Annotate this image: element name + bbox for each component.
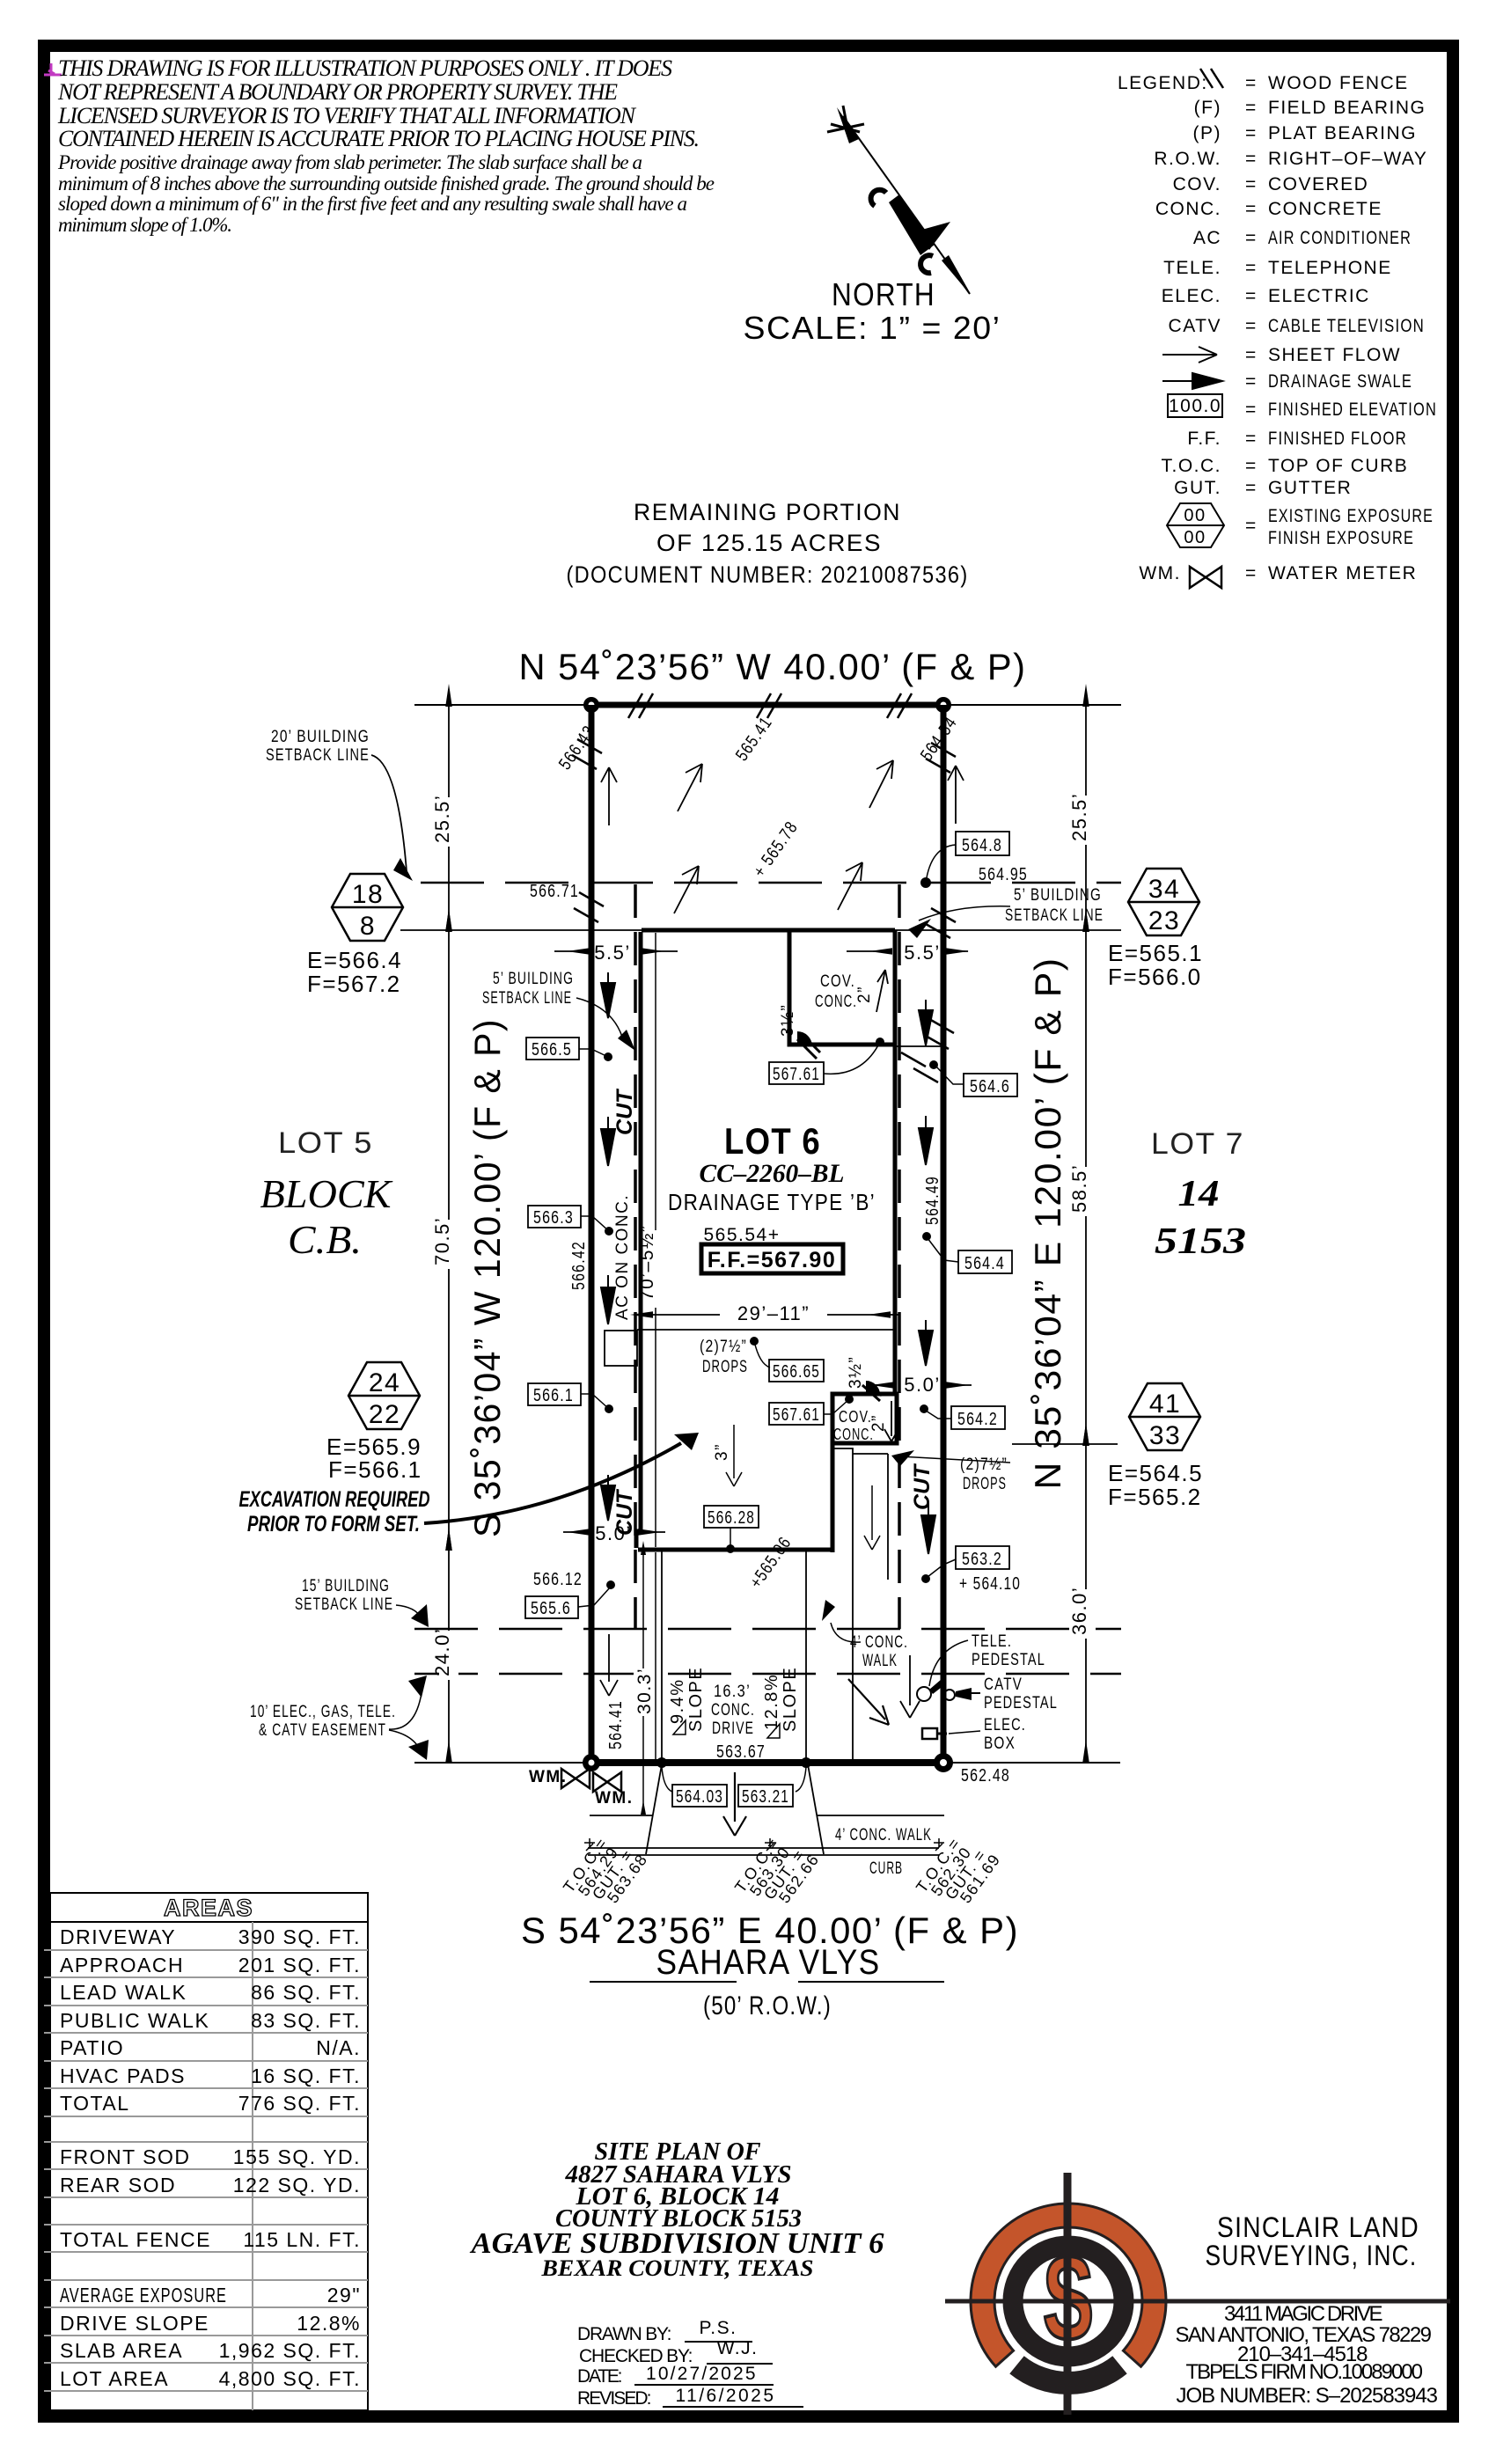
svg-text:=: = xyxy=(1245,516,1258,536)
svg-text:70.5’: 70.5’ xyxy=(431,1217,453,1265)
svg-text:83 SQ. FT.: 83 SQ. FT. xyxy=(251,2009,361,2032)
svg-text:THIS DRAWING IS FOR ILLUSTRATI: THIS DRAWING IS FOR ILLUSTRATION PURPOSE… xyxy=(58,55,672,81)
svg-text:GUT.: GUT. xyxy=(1174,478,1221,498)
svg-text:BOX: BOX xyxy=(984,1734,1016,1753)
svg-text:(F): (F) xyxy=(1194,98,1221,118)
svg-text:F=566.1: F=566.1 xyxy=(328,1456,422,1483)
svg-text:566.12: 566.12 xyxy=(533,1570,583,1589)
svg-text:TOTAL: TOTAL xyxy=(60,2092,130,2115)
svg-text:DATE:: DATE: xyxy=(577,2366,624,2387)
svg-text:SETBACK LINE: SETBACK LINE xyxy=(1005,906,1104,925)
svg-text:4’ CONC. WALK: 4’ CONC. WALK xyxy=(835,1826,932,1844)
svg-text:REMAINING PORTION: REMAINING PORTION xyxy=(634,499,901,525)
svg-text:SLOPE: SLOPE xyxy=(781,1667,800,1732)
svg-text:566.71: 566.71 xyxy=(530,882,579,901)
svg-text:=: = xyxy=(1245,258,1258,278)
svg-text:15’ BUILDING: 15’ BUILDING xyxy=(302,1577,390,1595)
svg-text:CUT: CUT xyxy=(910,1463,935,1510)
svg-text:564.41: 564.41 xyxy=(606,1700,626,1749)
svg-text:DRAINAGE TYPE ’B’: DRAINAGE TYPE ’B’ xyxy=(668,1189,876,1215)
svg-text:564.95: 564.95 xyxy=(979,865,1028,884)
svg-text:SETBACK LINE: SETBACK LINE xyxy=(295,1595,393,1614)
svg-text:=: = xyxy=(1245,123,1258,143)
svg-text:P.S.: P.S. xyxy=(700,2318,737,2338)
svg-text:58.5’: 58.5’ xyxy=(1068,1164,1090,1213)
svg-text:5’ BUILDING: 5’ BUILDING xyxy=(1014,886,1102,905)
svg-text:COVERED: COVERED xyxy=(1268,174,1368,194)
svg-text:COV.: COV. xyxy=(839,1408,872,1426)
svg-text:12.8%: 12.8% xyxy=(762,1674,781,1730)
svg-text:3”: 3” xyxy=(713,1443,731,1461)
svg-text:LEGEND:: LEGEND: xyxy=(1118,73,1208,93)
svg-text:TOP OF CURB: TOP OF CURB xyxy=(1268,456,1408,476)
svg-text:=: = xyxy=(1245,563,1258,583)
svg-text:CONC.: CONC. xyxy=(711,1701,755,1720)
svg-text:NOT REPRESENT A BOUNDARY OR PR: NOT REPRESENT A BOUNDARY OR PROPERTY SUR… xyxy=(57,79,618,105)
svg-text:RIGHT–OF–WAY: RIGHT–OF–WAY xyxy=(1268,149,1427,169)
svg-text:22: 22 xyxy=(369,1400,400,1429)
svg-text:564.2: 564.2 xyxy=(957,1410,998,1429)
svg-text:00: 00 xyxy=(1184,506,1206,525)
svg-text:TBPELS FIRM NO.10089000: TBPELS FIRM NO.10089000 xyxy=(1186,2360,1425,2384)
svg-text:25.5’: 25.5’ xyxy=(1068,793,1090,841)
svg-text:16.3’: 16.3’ xyxy=(714,1683,751,1701)
svg-text:DRAINAGE SWALE: DRAINAGE SWALE xyxy=(1268,371,1412,392)
svg-text:LOT 7: LOT 7 xyxy=(1151,1127,1244,1161)
svg-text:minimum slope of 1.0%.: minimum slope of 1.0%. xyxy=(58,214,232,236)
svg-text:25.5’: 25.5’ xyxy=(431,795,453,843)
svg-text:564.8: 564.8 xyxy=(962,836,1002,855)
svg-text:=: = xyxy=(1245,149,1258,169)
svg-text:562.48: 562.48 xyxy=(961,1766,1010,1786)
svg-text:WALK: WALK xyxy=(862,1652,898,1670)
svg-text:SETBACK LINE: SETBACK LINE xyxy=(482,989,572,1008)
svg-text:5’ BUILDING: 5’ BUILDING xyxy=(493,970,574,988)
svg-text:566.1: 566.1 xyxy=(533,1386,574,1405)
svg-text:F=566.0: F=566.0 xyxy=(1108,964,1202,990)
svg-text:115 LN. FT.: 115 LN. FT. xyxy=(243,2228,361,2251)
svg-text:2”: 2” xyxy=(855,986,874,1003)
svg-text:AIR CONDITIONER: AIR CONDITIONER xyxy=(1268,228,1412,248)
svg-text:11/6/2025: 11/6/2025 xyxy=(676,2386,775,2406)
svg-text:FINISHED ELEVATION: FINISHED ELEVATION xyxy=(1268,400,1437,420)
svg-text:PEDESTAL: PEDESTAL xyxy=(984,1694,1058,1712)
svg-text:=: = xyxy=(1245,199,1258,219)
svg-text:=: = xyxy=(1245,478,1258,498)
svg-text:12.8%: 12.8% xyxy=(297,2312,361,2335)
svg-text:DRIVEWAY: DRIVEWAY xyxy=(60,1925,176,1948)
svg-text:PATIO: PATIO xyxy=(60,2036,124,2059)
svg-text:FRONT SOD: FRONT SOD xyxy=(60,2145,191,2168)
svg-text:N 35˚36’04” E 120.00’ (F: N 35˚36’04” E 120.00’ (F & P) xyxy=(1027,957,1068,1490)
svg-text:29’–11”: 29’–11” xyxy=(737,1302,810,1324)
svg-text:W.J.: W.J. xyxy=(717,2338,759,2358)
svg-text:SURVEYING, INC.: SURVEYING, INC. xyxy=(1206,2240,1418,2271)
svg-text:WM.: WM. xyxy=(1139,563,1181,583)
svg-text:(P): (P) xyxy=(1193,123,1222,143)
svg-text:LICENSED SURVEYOR IS TO VERIFY: LICENSED SURVEYOR IS TO VERIFY THAT ALL … xyxy=(57,103,637,128)
svg-text:=: = xyxy=(1245,228,1258,248)
svg-text:2”: 2” xyxy=(869,1414,888,1432)
svg-text:LOT 6: LOT 6 xyxy=(724,1120,821,1162)
svg-text:SAHARA VLYS: SAHARA VLYS xyxy=(656,1943,881,1982)
svg-text:5.5’: 5.5’ xyxy=(904,942,940,964)
svg-text:566.42: 566.42 xyxy=(569,1241,589,1290)
svg-text:DRIVE SLOPE: DRIVE SLOPE xyxy=(60,2312,209,2335)
svg-text:(50’ R.O.W.): (50’ R.O.W.) xyxy=(703,1991,832,2020)
svg-text:DROPS: DROPS xyxy=(963,1475,1007,1493)
svg-text:390 SQ. FT.: 390 SQ. FT. xyxy=(238,1925,361,1948)
svg-text:PLAT BEARING: PLAT BEARING xyxy=(1268,123,1417,143)
svg-text:EXISTING EXPOSURE: EXISTING EXPOSURE xyxy=(1268,506,1434,526)
svg-text:minimum of 8 inches above the: minimum of 8 inches above the surroundin… xyxy=(58,172,715,194)
svg-text:30.3’: 30.3’ xyxy=(634,1668,655,1714)
svg-text:WM.: WM. xyxy=(595,1789,634,1808)
svg-text:41: 41 xyxy=(1149,1390,1181,1419)
svg-text:BEXAR COUNTY, TEXAS: BEXAR COUNTY, TEXAS xyxy=(540,2255,813,2281)
svg-text:F=565.2: F=565.2 xyxy=(1108,1484,1202,1510)
svg-text:N 54˚23’56” W 40.00’ (F &: N 54˚23’56” W 40.00’ (F & P) xyxy=(519,646,1027,687)
svg-text:AC: AC xyxy=(1193,228,1221,248)
svg-text:564.03: 564.03 xyxy=(676,1787,723,1807)
svg-text:564.49: 564.49 xyxy=(923,1176,942,1225)
svg-text:REVISED:: REVISED: xyxy=(577,2388,653,2409)
svg-text:E=566.4: E=566.4 xyxy=(307,947,402,973)
svg-text:TOTAL FENCE: TOTAL FENCE xyxy=(60,2228,211,2251)
svg-text:(DOCUMENT NUMBER: 2021008753: (DOCUMENT NUMBER: 20210087536) xyxy=(567,561,969,588)
svg-text:5.0’: 5.0’ xyxy=(595,1522,631,1544)
svg-text:563.21: 563.21 xyxy=(742,1787,789,1807)
svg-text:SCALE: 1” = 20’: SCALE: 1” = 20’ xyxy=(744,310,1001,346)
svg-text:86 SQ. FT.: 86 SQ. FT. xyxy=(251,1981,361,2004)
svg-text:& CATV EASEMENT: & CATV EASEMENT xyxy=(259,1721,386,1740)
svg-text:OF 125.15 ACRES: OF 125.15 ACRES xyxy=(656,530,882,556)
svg-text:CONCRETE: CONCRETE xyxy=(1268,199,1382,219)
svg-text:36.0’: 36.0’ xyxy=(1068,1587,1090,1635)
svg-text:COV.: COV. xyxy=(820,972,855,991)
svg-text:=: = xyxy=(1245,456,1258,476)
svg-text:CONC.: CONC. xyxy=(833,1426,874,1443)
svg-text:+ 564.10: + 564.10 xyxy=(959,1574,1021,1594)
svg-text:567.61: 567.61 xyxy=(773,1065,820,1084)
svg-text:4,800 SQ. FT.: 4,800 SQ. FT. xyxy=(219,2367,361,2390)
svg-text:563.67: 563.67 xyxy=(716,1742,766,1762)
svg-text:ELECTRIC: ELECTRIC xyxy=(1268,286,1370,306)
svg-text:PEDESTAL: PEDESTAL xyxy=(972,1651,1045,1669)
svg-text:LEAD WALK: LEAD WALK xyxy=(60,1981,187,2004)
svg-text:3411 MAGIC DRIVE: 3411 MAGIC DRIVE xyxy=(1224,2302,1384,2326)
svg-text:201 SQ. FT.: 201 SQ. FT. xyxy=(238,1954,361,1976)
svg-text:567.61: 567.61 xyxy=(773,1405,820,1425)
svg-text:SLAB AREA: SLAB AREA xyxy=(60,2339,183,2362)
svg-text:(2)7½”: (2)7½” xyxy=(700,1338,747,1356)
svg-text:F=567.2: F=567.2 xyxy=(307,971,401,997)
svg-text:23: 23 xyxy=(1148,906,1180,935)
svg-text:566.65: 566.65 xyxy=(773,1362,820,1382)
svg-text:APPROACH: APPROACH xyxy=(60,1954,184,1976)
svg-text:155 SQ. YD.: 155 SQ. YD. xyxy=(233,2145,361,2168)
svg-text:3½”: 3½” xyxy=(779,1004,797,1037)
svg-text:564.4: 564.4 xyxy=(964,1254,1005,1273)
svg-text:CONC.: CONC. xyxy=(815,993,857,1011)
svg-text:20’ BUILDING: 20’ BUILDING xyxy=(271,728,370,746)
svg-text:CATV: CATV xyxy=(1169,316,1221,336)
svg-text:566.28: 566.28 xyxy=(708,1508,755,1528)
svg-text:16 SQ. FT.: 16 SQ. FT. xyxy=(251,2064,361,2087)
svg-text:(2)7½”: (2)7½” xyxy=(960,1456,1008,1474)
svg-text:R.O.W.: R.O.W. xyxy=(1154,149,1221,169)
svg-text:TELE.: TELE. xyxy=(972,1632,1012,1651)
svg-text:ELEC.: ELEC. xyxy=(984,1716,1026,1734)
svg-text:DROPS: DROPS xyxy=(702,1358,748,1376)
svg-text:BLOCK: BLOCK xyxy=(260,1171,393,1216)
svg-text:TELEPHONE: TELEPHONE xyxy=(1268,258,1392,278)
svg-text:=: = xyxy=(1245,98,1258,118)
svg-text:sloped down a minimum of 6" in: sloped down a minimum of 6" in the first… xyxy=(58,193,687,215)
svg-text:FINISHED FLOOR: FINISHED FLOOR xyxy=(1268,429,1407,449)
svg-text:ELEC.: ELEC. xyxy=(1162,286,1221,306)
svg-text:3½”: 3½” xyxy=(847,1356,865,1389)
svg-text:E=565.1: E=565.1 xyxy=(1108,940,1203,966)
svg-text:18: 18 xyxy=(352,880,384,909)
svg-text:C.B.: C.B. xyxy=(288,1217,362,1262)
svg-text:8: 8 xyxy=(360,912,376,941)
svg-text:SLOPE: SLOPE xyxy=(686,1667,706,1732)
svg-text:566.5: 566.5 xyxy=(532,1040,572,1060)
svg-text:WATER METER: WATER METER xyxy=(1268,563,1417,583)
svg-text:564.6: 564.6 xyxy=(970,1077,1010,1096)
svg-text:33: 33 xyxy=(1149,1421,1181,1450)
svg-text:=: = xyxy=(1245,174,1258,194)
svg-text:24.0’: 24.0’ xyxy=(431,1628,453,1676)
svg-text:T.O.C.: T.O.C. xyxy=(1161,456,1221,476)
svg-text:CUT: CUT xyxy=(612,1088,637,1135)
svg-text:S 35˚36’04” W 120.00’ (F: S 35˚36’04” W 120.00’ (F & P) xyxy=(466,1018,508,1537)
svg-text:=: = xyxy=(1245,316,1258,336)
svg-text:=: = xyxy=(1245,286,1258,306)
svg-text:SHEET FLOW: SHEET FLOW xyxy=(1268,345,1401,365)
svg-text:10/27/2025: 10/27/2025 xyxy=(646,2364,757,2384)
svg-text:JOB NUMBER: S–202583943: JOB NUMBER: S–202583943 xyxy=(1177,2384,1440,2408)
svg-text:=: = xyxy=(1245,429,1258,449)
svg-text:E=564.5: E=564.5 xyxy=(1108,1460,1203,1486)
svg-text:AC ON CONC.: AC ON CONC. xyxy=(613,1194,632,1320)
svg-text:5.0’: 5.0’ xyxy=(904,1374,940,1396)
svg-text:Provide positive drainage away: Provide positive drainage away from slab… xyxy=(57,151,642,173)
svg-text:100.0: 100.0 xyxy=(1169,396,1221,416)
svg-text:REAR SOD: REAR SOD xyxy=(60,2174,176,2196)
svg-text:34: 34 xyxy=(1148,875,1180,904)
svg-text:CABLE TELEVISION: CABLE TELEVISION xyxy=(1268,316,1425,336)
svg-text:AREAS: AREAS xyxy=(164,1895,253,1921)
svg-text:DRIVE: DRIVE xyxy=(712,1720,754,1738)
svg-text:00: 00 xyxy=(1184,528,1206,547)
svg-text:=: = xyxy=(1245,73,1258,93)
svg-text:EXCAVATION REQUIRED: EXCAVATION REQUIRED xyxy=(239,1487,430,1512)
svg-text:566.3: 566.3 xyxy=(533,1208,574,1228)
svg-text:14: 14 xyxy=(1178,1174,1220,1214)
svg-text:F.F.=567.90: F.F.=567.90 xyxy=(708,1248,836,1272)
svg-text:GUTTER: GUTTER xyxy=(1268,478,1352,498)
svg-text:HVAC PADS: HVAC PADS xyxy=(60,2064,186,2087)
svg-text:24: 24 xyxy=(369,1368,400,1397)
svg-text:=: = xyxy=(1245,400,1258,420)
svg-text:FINISH EXPOSURE: FINISH EXPOSURE xyxy=(1268,528,1414,548)
svg-text:CURB: CURB xyxy=(869,1859,903,1878)
svg-text:CONC.: CONC. xyxy=(1155,199,1221,219)
svg-text:10’ ELEC., GAS, TELE.: 10’ ELEC., GAS, TELE. xyxy=(250,1703,396,1721)
svg-text:NORTH: NORTH xyxy=(832,276,935,312)
svg-text:F.F.: F.F. xyxy=(1187,429,1221,449)
svg-text:SETBACK LINE: SETBACK LINE xyxy=(266,746,370,765)
svg-text:FIELD BEARING: FIELD BEARING xyxy=(1268,98,1426,118)
svg-text:LOT 5: LOT 5 xyxy=(278,1126,373,1160)
svg-text:122 SQ. YD.: 122 SQ. YD. xyxy=(233,2174,361,2196)
svg-text:PUBLIC WALK: PUBLIC WALK xyxy=(60,2009,209,2032)
svg-text:=: = xyxy=(1245,371,1258,392)
svg-text:TELE.: TELE. xyxy=(1163,258,1221,278)
svg-text:=: = xyxy=(1245,345,1258,365)
svg-text:PRIOR TO FORM SET.: PRIOR TO FORM SET. xyxy=(247,1512,420,1536)
svg-text:DRAWN BY:: DRAWN BY: xyxy=(577,2324,673,2344)
svg-text:5.5’: 5.5’ xyxy=(594,942,630,964)
svg-text:565.6: 565.6 xyxy=(531,1599,571,1618)
svg-text:29": 29" xyxy=(327,2284,361,2306)
svg-text:N/A.: N/A. xyxy=(316,2036,361,2059)
svg-text:LOT AREA: LOT AREA xyxy=(60,2367,169,2390)
svg-text:70’–5½”: 70’–5½” xyxy=(637,1225,657,1301)
svg-text:776 SQ. FT.: 776 SQ. FT. xyxy=(238,2092,361,2115)
svg-text:1,962 SQ. FT.: 1,962 SQ. FT. xyxy=(219,2339,361,2362)
svg-text:CONTAINED HEREIN IS ACCURATE P: CONTAINED HEREIN IS ACCURATE PRIOR TO PL… xyxy=(58,126,700,151)
svg-text:SINCLAIR LAND: SINCLAIR LAND xyxy=(1217,2211,1419,2243)
svg-text:9.4%: 9.4% xyxy=(668,1678,687,1724)
svg-text:AVERAGE EXPOSURE: AVERAGE EXPOSURE xyxy=(60,2284,227,2306)
svg-text:CATV: CATV xyxy=(984,1676,1023,1694)
svg-text:CC–2260–BL: CC–2260–BL xyxy=(700,1159,845,1188)
svg-text:COV.: COV. xyxy=(1173,174,1221,194)
svg-text:563.2: 563.2 xyxy=(962,1550,1002,1569)
svg-text:WOOD FENCE: WOOD FENCE xyxy=(1268,73,1409,93)
svg-text:5153: 5153 xyxy=(1155,1221,1246,1262)
